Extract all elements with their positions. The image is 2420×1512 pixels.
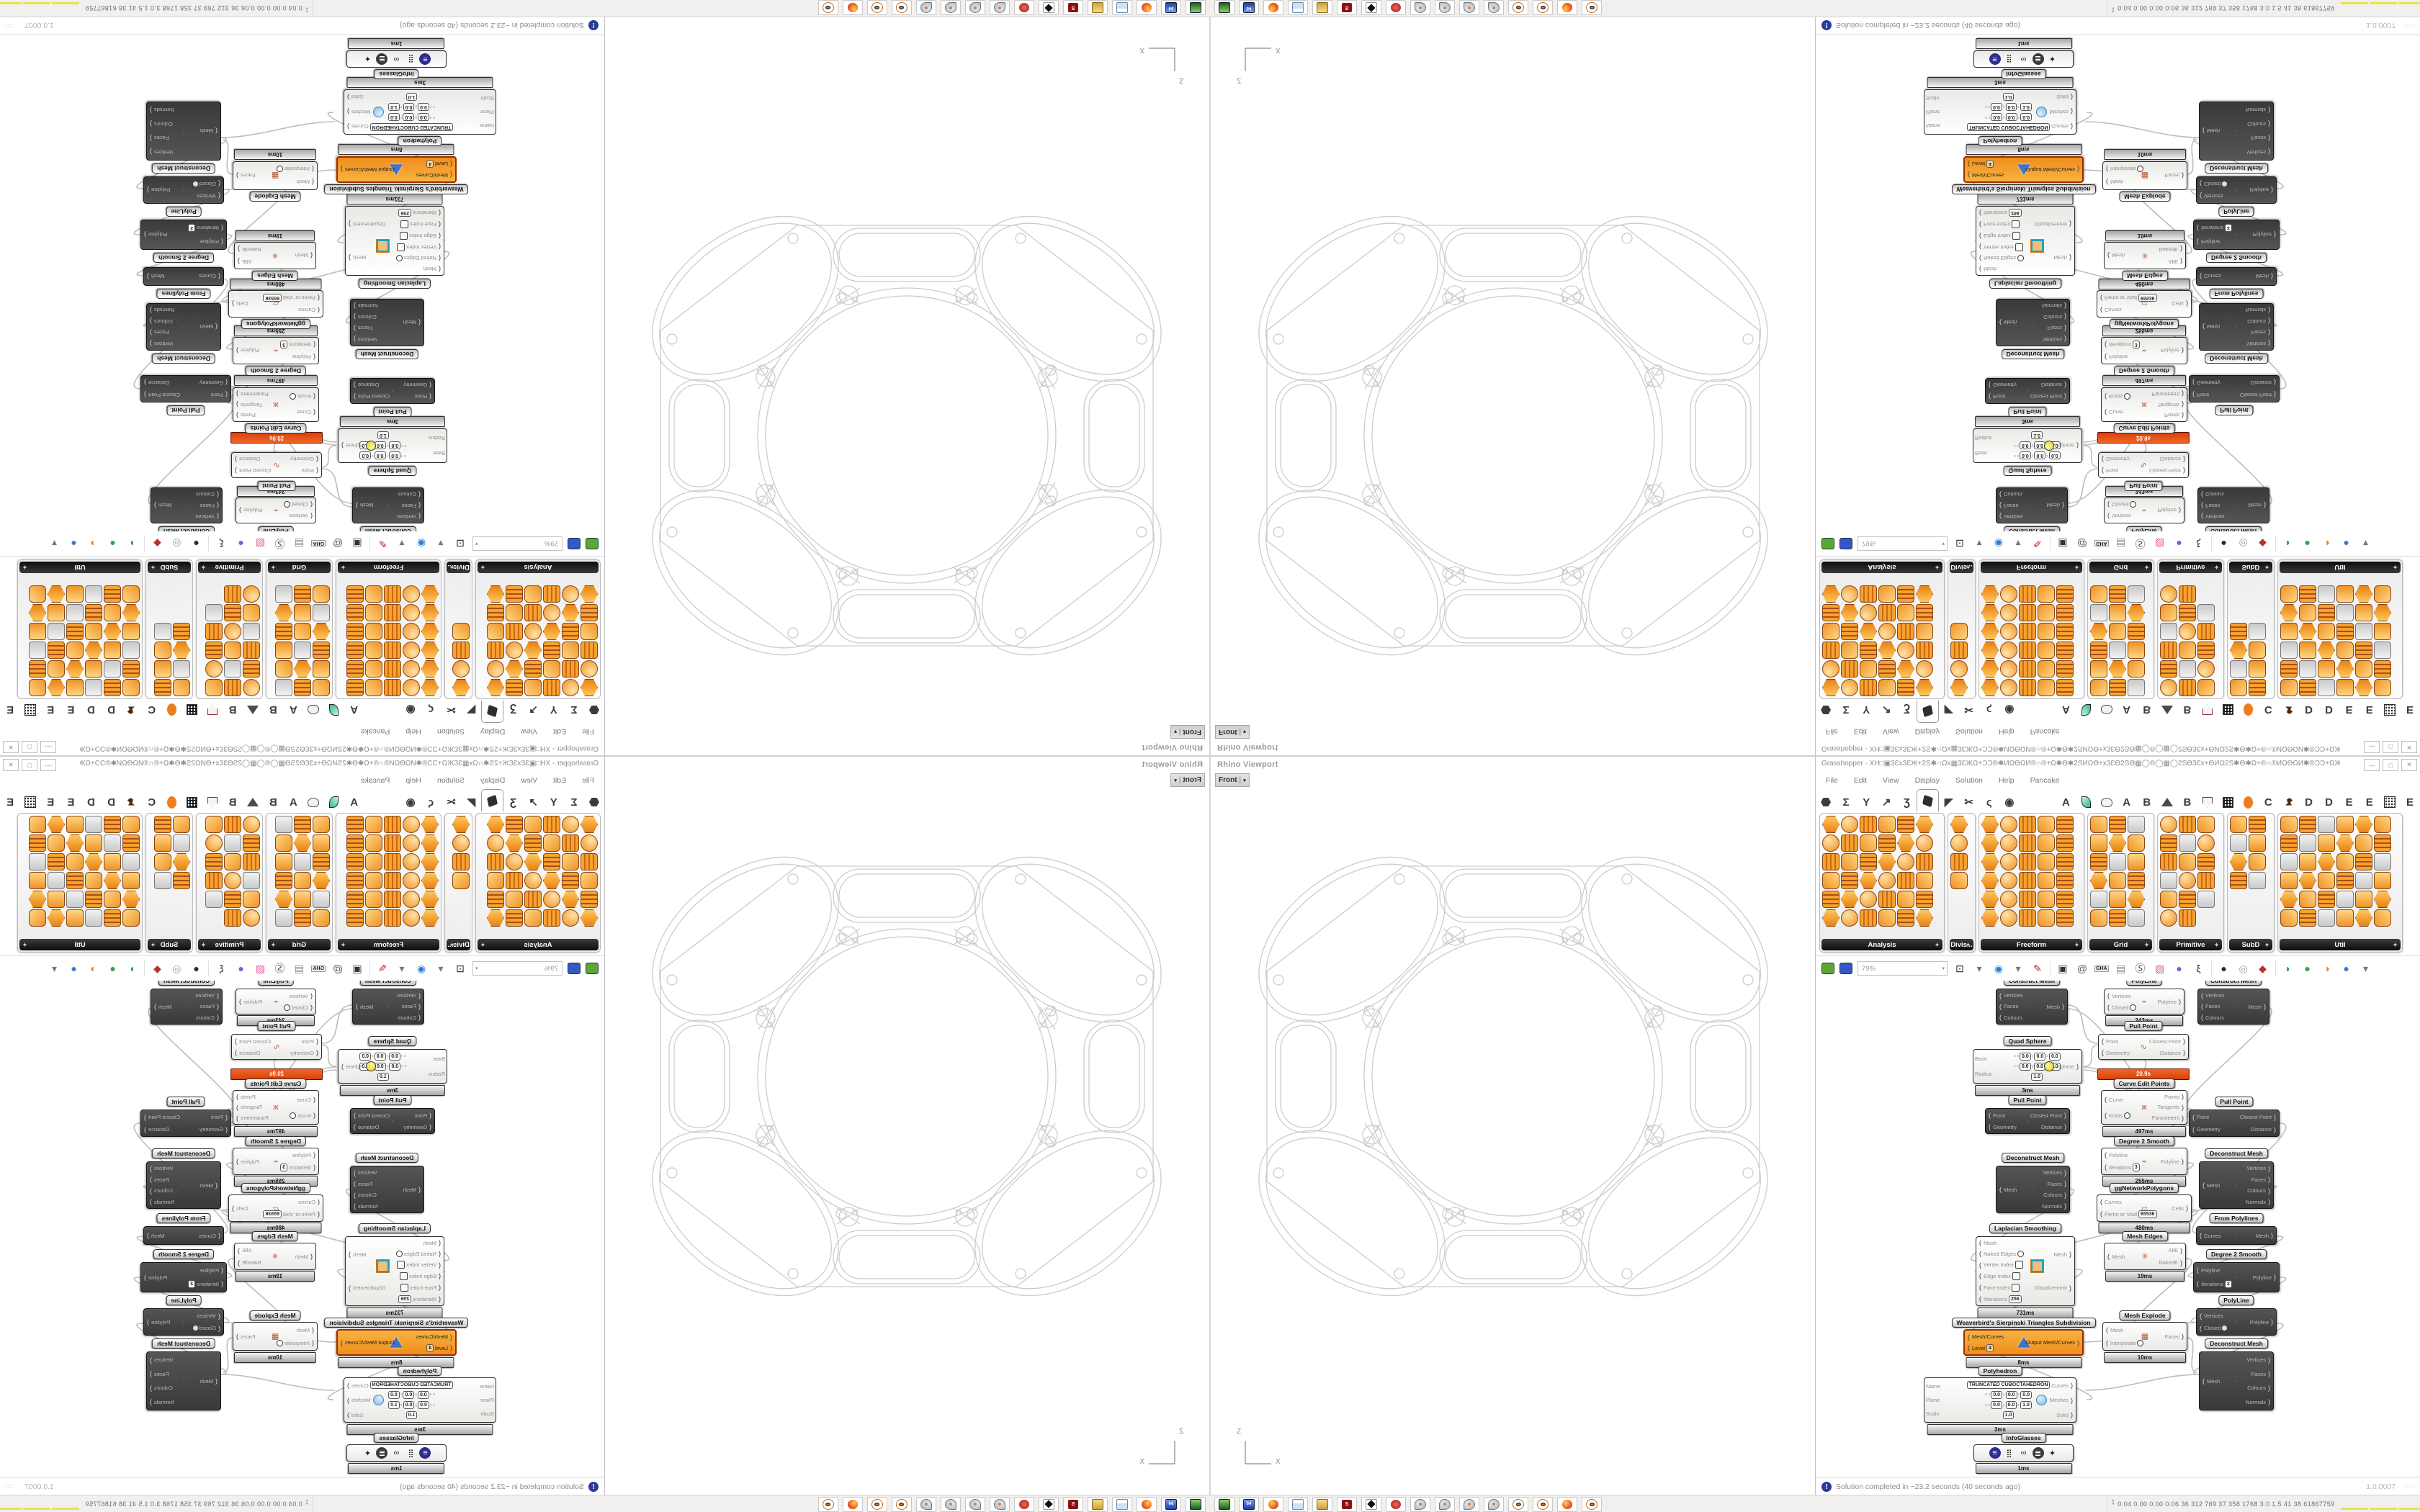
infoglasses-goggles-icon[interactable]: ∞ — [391, 53, 403, 65]
port-curves[interactable]: Curves — [2100, 307, 2122, 314]
node-polyline[interactable]: VerticesClosedPolyline⌁ — [236, 498, 316, 523]
close-button[interactable]: ✕ — [2401, 741, 2417, 753]
tab-maths[interactable]: Σ — [1836, 701, 1856, 719]
port-solid[interactable]: Solid — [347, 1411, 364, 1418]
component-icon[interactable] — [384, 660, 401, 678]
node-curve-edit-points[interactable]: CurveKnotsPointsTangentsParametersж — [2101, 1090, 2187, 1125]
component-icon[interactable] — [2374, 872, 2391, 889]
port-normals[interactable]: Normals — [150, 307, 174, 314]
value-chip[interactable]: 0.0 — [2006, 113, 2017, 121]
panel-footer[interactable]: Analysis✦ — [1821, 939, 1942, 950]
component-icon[interactable] — [313, 604, 330, 621]
component-icon[interactable] — [2038, 623, 2055, 640]
tab-plugin-12[interactable]: D — [101, 793, 121, 811]
node-laplacian-smoothing[interactable]: MeshNaked EdgesVertex IndexEdge IndexFac… — [345, 206, 444, 276]
toggle-box[interactable] — [400, 232, 408, 240]
component-icon[interactable] — [524, 660, 542, 678]
node-label[interactable]: ggNetworkPolygons — [2110, 1183, 2179, 1193]
component-icon[interactable] — [384, 816, 401, 833]
component-icon[interactable] — [2355, 623, 2372, 640]
component-icon[interactable] — [2249, 660, 2266, 678]
port-value-chip[interactable]: 256 — [2009, 209, 2022, 217]
component-icon[interactable] — [2336, 660, 2354, 678]
panel-expand-icon[interactable]: ✦ — [271, 564, 276, 571]
component-icon[interactable] — [452, 679, 470, 696]
toggle-box[interactable] — [2012, 1272, 2020, 1280]
node-label[interactable]: Deconstruct Mesh — [152, 1338, 215, 1349]
component-icon[interactable] — [2299, 834, 2316, 852]
component-icon[interactable] — [487, 853, 504, 870]
component-icon[interactable] — [384, 642, 401, 659]
dna-icon[interactable]: ξ — [2192, 536, 2206, 551]
component-icon[interactable] — [1841, 853, 1858, 870]
port-colours[interactable]: Colours — [2043, 1192, 2066, 1199]
component-icon[interactable] — [2128, 642, 2145, 659]
component-icon[interactable] — [365, 872, 382, 889]
node-label[interactable]: PolyLine — [2126, 526, 2161, 531]
component-icon[interactable] — [543, 834, 560, 852]
scale-chip[interactable]: 1.0 — [406, 93, 418, 101]
port-curves[interactable]: Curves — [2051, 123, 2073, 130]
value-chip[interactable]: 0.0 — [1991, 1391, 2002, 1399]
node-label[interactable]: Quad Sphere — [369, 1036, 417, 1046]
menu-item-file[interactable]: File — [1826, 727, 1838, 736]
taskbar-gear-red-icon[interactable] — [1014, 1497, 1034, 1512]
cluster-icon[interactable]: ▧ — [2153, 961, 2167, 976]
component-icon[interactable] — [275, 585, 292, 603]
tab-intersect[interactable]: ✂ — [1959, 701, 1979, 719]
component-icon[interactable] — [2109, 623, 2126, 640]
tab-plugin-10[interactable]: C — [2258, 793, 2278, 811]
component-icon[interactable] — [2090, 642, 2107, 659]
component-icon[interactable] — [224, 834, 241, 852]
component-icon[interactable] — [1981, 585, 1999, 603]
port-itterations[interactable]: Itterations256 — [398, 209, 441, 217]
node-label[interactable]: Weaverbird's Sierpinski Triangles Subdiv… — [1951, 1318, 2095, 1328]
node-label[interactable]: Degree 2 Smooth — [153, 253, 214, 263]
port-iterations[interactable]: Iterations2 — [2197, 1280, 2232, 1288]
component-icon[interactable] — [2336, 604, 2354, 621]
port-closest-point[interactable]: Closest Point — [354, 393, 390, 400]
component-icon[interactable] — [275, 660, 292, 678]
component-icon[interactable] — [2000, 834, 2017, 852]
node-label[interactable]: PolyLine — [258, 526, 293, 531]
node-pull-point[interactable]: PointGeometryClosest PointDistance∿ — [2098, 1034, 2189, 1060]
component-icon[interactable] — [365, 604, 382, 621]
node-pull-point[interactable]: PointGeometryClosest PointDistance∿ — [231, 1034, 322, 1060]
component-icon[interactable] — [2128, 834, 2145, 852]
component-icon[interactable] — [2230, 853, 2247, 870]
port-value-chip[interactable]: 4 — [1986, 1344, 1994, 1352]
node-label[interactable]: Pull Point — [2124, 1021, 2162, 1031]
taskbar-inkscape-icon[interactable] — [1361, 1497, 1381, 1512]
port-faces[interactable]: Faces — [2201, 1003, 2220, 1010]
port-cells[interactable]: Cells — [2172, 300, 2188, 307]
menu-item-help[interactable]: Help — [1999, 776, 2015, 785]
node-label[interactable]: From Polylines — [2210, 289, 2264, 299]
component-icon[interactable] — [173, 853, 190, 870]
panel-expand-icon[interactable]: ✦ — [2214, 942, 2219, 948]
component-icon[interactable] — [2280, 909, 2298, 927]
component-icon[interactable] — [66, 604, 84, 621]
component-icon[interactable] — [2109, 834, 2126, 852]
tab-transform[interactable]: ς — [421, 701, 441, 719]
component-icon[interactable] — [2299, 891, 2316, 908]
tab-plugin-1[interactable] — [2076, 701, 2096, 719]
value-chip[interactable]: 0.0 — [389, 442, 400, 450]
port-geometry[interactable]: Geometry — [200, 1126, 228, 1133]
toggle-circle[interactable] — [284, 502, 290, 508]
tab-plugin-8[interactable] — [182, 701, 202, 719]
component-icon[interactable] — [1897, 853, 1914, 870]
port-polyline[interactable]: Polyline — [144, 1274, 167, 1281]
port-value-chip[interactable]: 4 — [426, 161, 434, 168]
menu-item-file[interactable]: File — [1826, 776, 1838, 785]
component-icon[interactable] — [403, 834, 420, 852]
component-icon[interactable] — [1981, 660, 1999, 678]
component-icon[interactable] — [2090, 816, 2107, 833]
component-icon[interactable] — [403, 909, 420, 927]
port-mesh[interactable]: Mesh — [2202, 323, 2220, 330]
component-icon[interactable] — [275, 816, 292, 833]
menu-item-pancake[interactable]: Pancake — [2030, 727, 2060, 736]
port-polyline[interactable]: Polyline — [147, 186, 170, 194]
taskbar-word-red-icon[interactable]: S — [1063, 1497, 1083, 1512]
tab-plugin-6[interactable]: B — [2177, 793, 2197, 811]
panel-footer[interactable]: Grid✦ — [2089, 939, 2152, 950]
port-sphere[interactable]: Sphere — [2044, 1061, 2079, 1071]
port-geometry[interactable]: Geometry — [290, 1049, 318, 1056]
component-icon[interactable] — [2056, 604, 2074, 621]
component-icon[interactable] — [1916, 909, 1933, 927]
node-quad-sphere[interactable]: BaseRadiuso x0.0y0.0z0.0z x0.0y0.0z1.01.… — [338, 1049, 447, 1084]
toggle-circle[interactable] — [2124, 1112, 2130, 1119]
toggle-dot[interactable] — [193, 1326, 198, 1331]
panel-footer[interactable]: Grid✦ — [268, 562, 331, 573]
radius-chip[interactable]: 1.0 — [2031, 432, 2043, 440]
node-label[interactable]: Construct Mesh — [360, 526, 416, 531]
value-chip[interactable]: 0.0 — [418, 1401, 429, 1409]
node-mesh-explode[interactable]: MeshInterpolateFaces▦ — [233, 1322, 318, 1351]
panel-expand-icon[interactable]: ✦ — [2144, 564, 2149, 571]
component-icon[interactable] — [154, 660, 171, 678]
toggle-box[interactable] — [2012, 1284, 2020, 1292]
taskbar-calculator-icon[interactable] — [1112, 1497, 1132, 1512]
port-colours[interactable]: Colours — [398, 1014, 421, 1021]
port-vertex-index[interactable]: Vertex Index — [397, 1261, 441, 1269]
port-faces[interactable]: Faces — [2048, 1180, 2066, 1187]
node-mesh-explode[interactable]: MeshInterpolateFaces▦ — [2102, 1322, 2187, 1351]
node-label[interactable]: Laplacian Smoothing — [1989, 1223, 2061, 1233]
port-geometry[interactable]: Geometry — [1989, 1123, 2017, 1130]
tab-plugin-11[interactable] — [2278, 793, 2298, 811]
node-pull-point[interactable]: PointGeometryClosest PointDistance∿ — [231, 452, 322, 478]
port-polyline[interactable]: Polyline — [2253, 1274, 2276, 1281]
port-value-chip[interactable]: 4 — [426, 1344, 434, 1352]
value-chip[interactable]: 0.0 — [1991, 1401, 2002, 1409]
port-value-chip[interactable]: 2 — [2225, 1280, 2232, 1288]
port-vertices[interactable]: Vertices — [150, 1356, 174, 1364]
resize-grip-icon[interactable]: ∷∷ — [2406, 1483, 2416, 1491]
panel-expand-icon[interactable]: ✦ — [201, 564, 206, 571]
port-mesh[interactable]: Mesh — [1999, 1186, 2017, 1193]
component-icon[interactable] — [154, 872, 171, 889]
torus-icon[interactable]: ◎ — [169, 536, 184, 551]
component-icon[interactable] — [85, 872, 102, 889]
component-icon[interactable] — [85, 679, 102, 696]
component-icon[interactable] — [1878, 853, 1896, 870]
port-parameters[interactable]: Parameters — [236, 1115, 269, 1122]
component-icon[interactable] — [2179, 623, 2196, 640]
panel-expand-icon[interactable]: ✦ — [1935, 942, 1940, 948]
node-quad-sphere[interactable]: BaseRadiuso x0.0y0.0z0.0z x0.0y0.0z1.01.… — [338, 428, 447, 463]
port-colours[interactable]: Colours — [150, 318, 173, 325]
component-icon[interactable] — [384, 891, 401, 908]
value-chip[interactable]: 0.0 — [403, 1401, 415, 1409]
infoglasses-plugin-icon[interactable]: ✦ — [362, 1447, 374, 1459]
panel-footer[interactable]: SubD✦ — [2229, 562, 2272, 573]
component-icon[interactable] — [1981, 816, 1999, 833]
component-icon[interactable] — [1822, 623, 1839, 640]
tab-plugin-15[interactable]: E — [2359, 701, 2380, 719]
node-infoglasses[interactable]: ≡⣿∞≣✦ — [346, 50, 447, 68]
component-icon[interactable] — [2299, 853, 2316, 870]
node-label[interactable]: Degree 2 Smooth — [2206, 1249, 2267, 1259]
preview-eye-icon[interactable]: ◉ — [414, 961, 429, 976]
port-faces[interactable]: Faces — [402, 1003, 421, 1010]
tab-plugin-12[interactable]: D — [2298, 701, 2318, 719]
component-icon[interactable] — [2299, 623, 2316, 640]
component-icon[interactable] — [2299, 585, 2316, 603]
dropdown-icon[interactable]: ▾ — [395, 961, 409, 976]
tab-plugin-12[interactable]: D — [2298, 793, 2318, 811]
port-nakede[interactable]: NakedE — [238, 1259, 261, 1266]
component-icon[interactable] — [2038, 642, 2055, 659]
component-icon[interactable] — [66, 853, 84, 870]
component-icon[interactable] — [487, 909, 504, 927]
port-closed[interactable]: Closed — [284, 1004, 313, 1011]
tab-display[interactable]: ◉ — [1999, 701, 2020, 719]
component-icon[interactable] — [2000, 872, 2017, 889]
panel-expand-icon[interactable]: ✦ — [449, 942, 454, 948]
component-icon[interactable] — [452, 642, 470, 659]
toggle-box[interactable] — [397, 1261, 405, 1269]
sphere-green-icon[interactable]: ● — [2300, 536, 2315, 551]
component-icon[interactable] — [1878, 679, 1896, 696]
node-label[interactable]: Construct Mesh — [2205, 526, 2262, 531]
dna-icon[interactable]: ξ — [214, 961, 228, 976]
component-icon[interactable] — [2230, 679, 2247, 696]
component-icon[interactable] — [173, 623, 190, 640]
node-deconstruct-mesh[interactable]: MeshVerticesFacesColoursNormals· — [1996, 299, 2070, 346]
node-infoglasses[interactable]: ≡⣿∞≣✦ — [346, 1444, 447, 1462]
port-parameters[interactable]: Parameters — [2151, 390, 2184, 397]
menu-item-edit[interactable]: Edit — [1854, 776, 1867, 785]
component-icon[interactable] — [1860, 834, 1877, 852]
taskbar-firefox-icon[interactable] — [1263, 1497, 1283, 1512]
tab-plugin-8[interactable] — [2218, 793, 2238, 811]
port-face-index[interactable]: Face Index — [400, 1284, 441, 1292]
dropdown-icon[interactable]: ▾ — [1972, 536, 1986, 551]
component-icon[interactable] — [48, 623, 65, 640]
port-naked-edges[interactable]: Naked Edges — [1979, 1250, 2024, 1257]
gha-assembly-icon[interactable]: GHA — [2094, 541, 2109, 547]
port-mesh[interactable]: Mesh — [147, 273, 164, 280]
component-icon[interactable] — [122, 604, 140, 621]
component-icon[interactable] — [384, 679, 401, 696]
minimize-button[interactable]: — — [40, 759, 56, 771]
infoglasses-grid-icon[interactable]: ⣿ — [405, 1447, 417, 1459]
port-mesh[interactable]: Mesh — [2106, 179, 2123, 186]
sphere-black-icon[interactable]: ● — [189, 961, 203, 976]
tab-plugin-7[interactable] — [202, 701, 223, 719]
dropdown-icon[interactable]: ▾ — [47, 961, 61, 976]
port-cells[interactable]: Cells — [232, 300, 248, 307]
tab-plugin-3[interactable]: A — [283, 793, 303, 811]
component-icon[interactable] — [2019, 585, 2036, 603]
component-icon[interactable] — [2299, 660, 2316, 678]
finder-icon[interactable]: Ⓢ — [272, 961, 287, 976]
component-icon[interactable] — [2090, 623, 2107, 640]
panel-footer[interactable]: Freeform✦ — [338, 562, 439, 573]
component-icon[interactable] — [365, 909, 382, 927]
port-edge-index[interactable]: Edge Index — [1979, 1272, 2020, 1280]
component-icon[interactable] — [313, 679, 330, 696]
component-icon[interactable] — [487, 891, 504, 908]
port-vertices[interactable]: Vertices — [397, 513, 421, 520]
dropdown-icon[interactable]: ▾ — [395, 536, 409, 551]
infoglasses-plugin-icon[interactable]: ✦ — [2047, 1447, 2058, 1459]
node-label[interactable]: PolyLine — [258, 981, 293, 986]
component-icon[interactable] — [2374, 679, 2391, 696]
taskbar-folder-icon[interactable] — [1312, 1, 1332, 16]
menu-item-help[interactable]: Help — [405, 727, 421, 736]
port-solid[interactable]: Solid — [347, 94, 364, 101]
node-label[interactable]: Deconstruct Mesh — [152, 354, 215, 364]
component-icon[interactable] — [1878, 642, 1896, 659]
component-icon[interactable] — [2249, 834, 2266, 852]
port-mesh[interactable]: Mesh — [349, 1251, 366, 1258]
component-icon[interactable] — [1860, 679, 1877, 696]
component-icon[interactable] — [29, 816, 46, 833]
component-icon[interactable] — [29, 872, 46, 889]
panel-footer[interactable]: Util✦ — [19, 562, 140, 573]
port-dispalcement[interactable]: Dispalcement — [2035, 220, 2071, 228]
component-icon[interactable] — [2249, 642, 2266, 659]
port-faces[interactable]: Faces — [2251, 1370, 2270, 1377]
component-icon[interactable] — [104, 853, 121, 870]
node-curve-edit-points[interactable]: CurveKnotsPointsTangentsParametersж — [2101, 387, 2187, 422]
component-icon[interactable] — [1950, 623, 1968, 640]
port-faces[interactable]: Faces — [354, 325, 372, 332]
port-closest-point[interactable]: Closest Point — [2240, 1114, 2276, 1121]
component-icon[interactable] — [1897, 816, 1914, 833]
node-label[interactable]: Construct Mesh — [158, 981, 215, 986]
port-polyline[interactable]: Polyline — [2161, 1158, 2184, 1165]
tab-params[interactable] — [1816, 793, 1836, 811]
component-icon[interactable] — [1878, 585, 1896, 603]
port-perim-or-void[interactable]: Perim or Void65536 — [264, 294, 321, 302]
component-icon[interactable] — [2160, 623, 2177, 640]
port-value-chip[interactable]: 256 — [2009, 1295, 2022, 1303]
node-construct-mesh[interactable]: VerticesFacesColoursMesh· — [2197, 487, 2269, 523]
tab-params[interactable] — [1816, 701, 1836, 719]
component-icon[interactable] — [1860, 623, 1877, 640]
component-icon[interactable] — [104, 872, 121, 889]
component-icon[interactable] — [1897, 909, 1914, 927]
node-label[interactable]: Construct Mesh — [2205, 981, 2262, 986]
sphere-orange-icon[interactable]: ◑ — [2320, 961, 2334, 976]
component-icon[interactable] — [2280, 853, 2298, 870]
component-icon[interactable] — [2355, 642, 2372, 659]
node-label[interactable]: Polyhedron — [1978, 136, 2022, 146]
component-icon[interactable] — [2038, 891, 2055, 908]
panel-expand-icon[interactable]: ✦ — [151, 564, 156, 571]
port-tangents[interactable]: Tangents — [236, 1104, 262, 1111]
panel-expand-icon[interactable]: ✦ — [22, 942, 27, 948]
component-icon[interactable] — [543, 816, 560, 833]
scale-chip[interactable]: 1.0 — [2003, 1411, 2015, 1419]
tab-vector[interactable]: ↗ — [524, 793, 544, 811]
component-icon[interactable] — [122, 872, 140, 889]
panel-expand-icon[interactable]: ✦ — [2393, 564, 2398, 571]
component-icon[interactable] — [1897, 660, 1914, 678]
panel-expand-icon[interactable]: ✦ — [1966, 564, 1971, 571]
taskbar-floppy-blue-icon[interactable]: 64 — [1161, 1, 1181, 16]
component-icon[interactable] — [384, 623, 401, 640]
component-icon[interactable] — [2230, 623, 2247, 640]
component-icon[interactable] — [154, 642, 171, 659]
component-icon[interactable] — [2160, 660, 2177, 678]
taskbar-folder-icon[interactable] — [1088, 1497, 1108, 1512]
component-icon[interactable] — [2355, 872, 2372, 889]
component-icon[interactable] — [1860, 660, 1877, 678]
component-icon[interactable] — [2179, 872, 2196, 889]
port-vertices[interactable]: Vertices — [150, 148, 174, 156]
node-label[interactable]: Degree 2 Smooth — [2206, 253, 2267, 263]
tab-maths[interactable]: Σ — [564, 701, 584, 719]
node-ggnetworkpolygons[interactable]: CurvesPerim or Void65536Cells▱ — [228, 290, 323, 318]
port-iterations[interactable]: Iterations2 — [188, 224, 223, 232]
component-icon[interactable] — [346, 604, 364, 621]
taskbar-paint-icon[interactable] — [1484, 1, 1504, 16]
node-label[interactable]: Deconstruct Mesh — [2205, 354, 2268, 364]
sketch-pen-icon[interactable]: ✎ — [375, 961, 390, 976]
component-icon[interactable] — [2318, 604, 2335, 621]
port-faces[interactable]: Faces — [2251, 1176, 2270, 1183]
remote-panel-icon[interactable]: @ — [2075, 536, 2089, 551]
menu-item-solution[interactable]: Solution — [437, 727, 465, 736]
component-icon[interactable] — [421, 834, 439, 852]
node-degree-2-smooth[interactable]: PolylineIterations2Polyline· — [2193, 1262, 2280, 1292]
component-icon[interactable] — [243, 891, 260, 908]
node-mesh-explode[interactable]: MeshInterpolateFaces▦ — [2102, 161, 2187, 190]
component-icon[interactable] — [243, 623, 260, 640]
port-value-chip[interactable]: 65536 — [2138, 1210, 2156, 1218]
component-icon[interactable] — [1878, 834, 1896, 852]
panel-footer[interactable]: Analysis✦ — [1821, 562, 1942, 573]
port-distance[interactable]: Distance — [235, 456, 260, 463]
dropdown-icon[interactable]: ▾ — [47, 536, 61, 551]
panel-footer[interactable]: SubD✦ — [148, 939, 191, 950]
infoglasses-goggles-icon[interactable]: ∞ — [391, 1447, 403, 1459]
sphere-orange-icon[interactable]: ◑ — [2320, 536, 2334, 551]
node-deconstruct-mesh[interactable]: MeshVerticesFacesColoursNormals· — [146, 1161, 221, 1209]
panel-footer[interactable]: SubD✦ — [2229, 939, 2272, 950]
component-icon[interactable] — [562, 642, 579, 659]
component-icon[interactable] — [2160, 642, 2177, 659]
port-polyline[interactable]: Polyline — [200, 1266, 223, 1274]
